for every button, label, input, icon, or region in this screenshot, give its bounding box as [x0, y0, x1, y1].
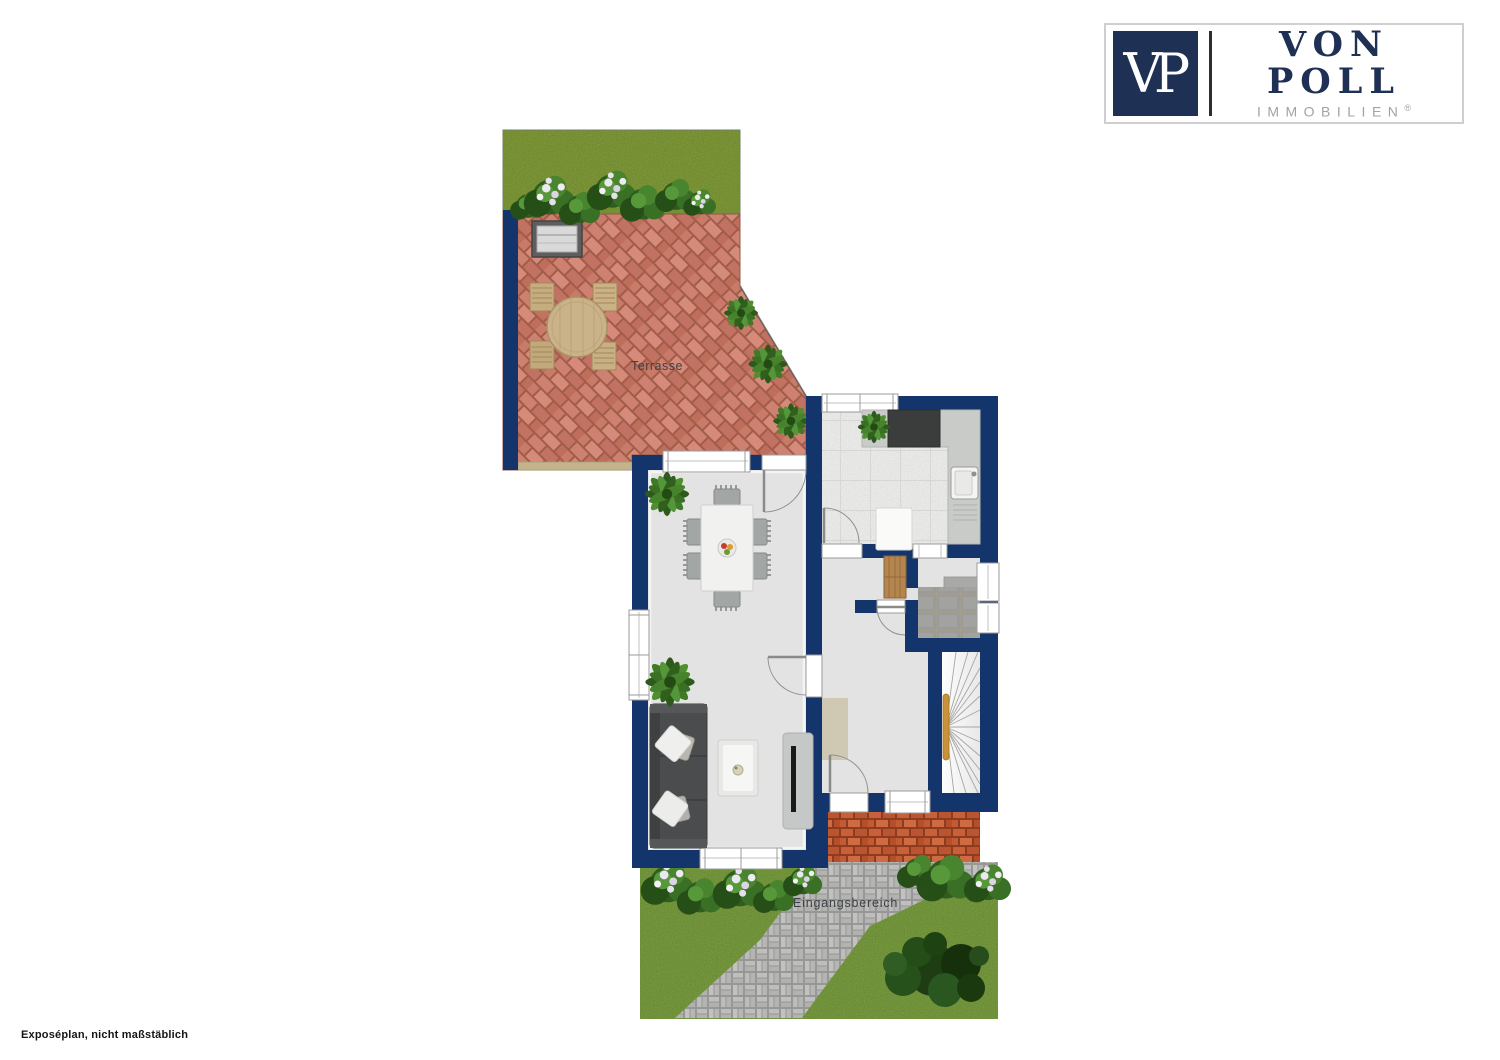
stove-icon [888, 410, 940, 447]
wall-segment [905, 600, 918, 638]
wall-segment [905, 638, 998, 652]
vonpoll-logo: VP VON POLL IMMOBILIEN® [1104, 23, 1464, 124]
plan-caption: Exposéplan, nicht maßstäblich [21, 1029, 188, 1041]
registered-mark: ® [1404, 103, 1411, 113]
fruit-bowl [718, 539, 736, 557]
window [977, 563, 999, 601]
hall-rug [820, 698, 848, 760]
entrance-porch [828, 812, 980, 862]
sideboard [884, 556, 906, 598]
coffee-table [718, 740, 758, 796]
terrace-label: Terrasse [631, 359, 683, 373]
logo-name: VON POLL [1212, 27, 1456, 101]
vp-monogram-text: VP [1123, 47, 1187, 101]
plant-icon [645, 657, 694, 706]
wall-segment [928, 652, 942, 798]
living-door-opening [806, 655, 822, 697]
window [663, 451, 750, 472]
tv-sideboard [783, 733, 813, 829]
plant-icon [645, 472, 689, 516]
grill-icon [532, 221, 582, 257]
window [629, 610, 649, 700]
window [885, 791, 930, 813]
window [700, 848, 782, 869]
window [822, 394, 898, 412]
terrace-edge-strip [518, 462, 632, 470]
kitchen-door-opening [822, 544, 862, 558]
logo-subtitle: IMMOBILIEN® [1212, 103, 1456, 120]
terrace: Terrasse [503, 130, 809, 470]
terrace-chair [530, 283, 554, 311]
sofa [650, 704, 707, 848]
wall-segment [905, 558, 918, 588]
tv-icon [791, 746, 796, 812]
wall-segment [503, 210, 518, 470]
terrace-door-opening [762, 455, 806, 470]
floorplan-page: Terrasse Eingangsbereich [0, 0, 1500, 1060]
window [977, 603, 999, 633]
stairs [942, 652, 980, 793]
kitchen-island [876, 508, 912, 550]
entrance-label: Eingangsbereich [793, 896, 898, 910]
kitchen-pass-opening [913, 544, 947, 558]
logo-text: VON POLL IMMOBILIEN® [1212, 27, 1462, 120]
plant-icon [858, 411, 890, 443]
vp-monogram: VP [1113, 31, 1198, 116]
front-door-opening [830, 793, 868, 812]
stair-rail [943, 694, 949, 760]
wall-segment [750, 455, 762, 470]
wall-segment [855, 600, 877, 613]
terrace-chair [530, 341, 554, 369]
floorplan: Terrasse Eingangsbereich [0, 0, 1500, 1060]
vestibule-tiles [918, 587, 980, 638]
